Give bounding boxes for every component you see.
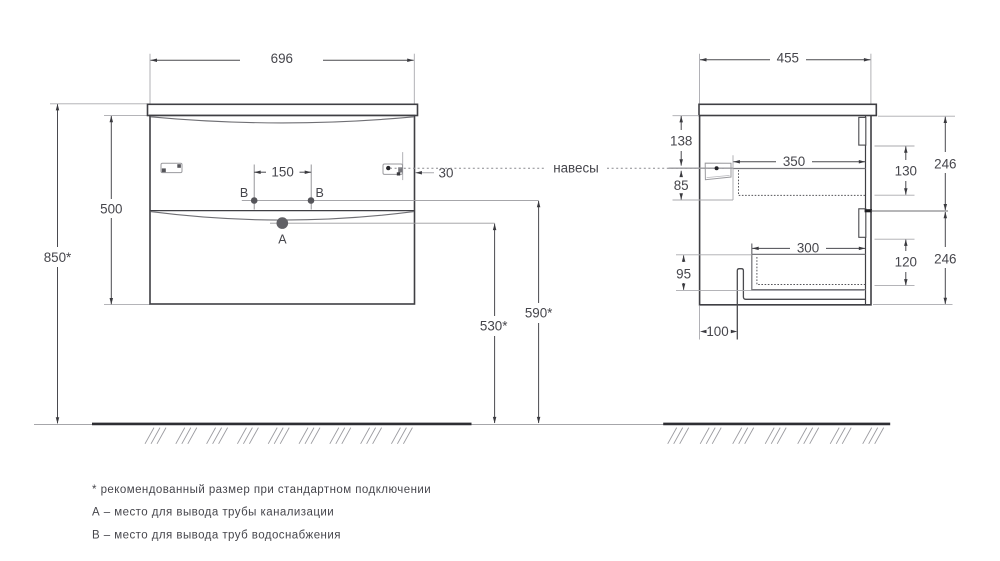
svg-text:85: 85 <box>674 178 689 193</box>
svg-text:300: 300 <box>797 240 819 255</box>
svg-text:590*: 590* <box>525 306 553 321</box>
svg-text:В – место для вывода труб водо: В – место для вывода труб водоснабжения <box>92 529 341 541</box>
svg-text:B: B <box>240 186 248 200</box>
svg-text:150: 150 <box>271 165 293 180</box>
svg-text:* рекомендованный размер при с: * рекомендованный размер при стандартном… <box>92 484 431 496</box>
svg-text:120: 120 <box>895 254 917 269</box>
svg-text:A: A <box>278 233 287 247</box>
svg-text:455: 455 <box>777 51 799 66</box>
svg-text:95: 95 <box>676 267 691 282</box>
svg-text:А – место для вывода трубы кан: А – место для вывода трубы канализации <box>92 507 334 519</box>
svg-text:850*: 850* <box>44 250 72 265</box>
svg-text:B: B <box>316 186 324 200</box>
svg-text:530*: 530* <box>480 319 508 334</box>
svg-text:350: 350 <box>783 154 805 169</box>
svg-text:696: 696 <box>271 51 293 66</box>
svg-text:500: 500 <box>100 202 122 217</box>
svg-text:30: 30 <box>439 165 454 180</box>
svg-text:100: 100 <box>706 324 728 339</box>
svg-text:246: 246 <box>934 251 956 266</box>
svg-text:навесы: навесы <box>553 161 599 176</box>
svg-text:246: 246 <box>934 156 956 171</box>
svg-text:130: 130 <box>895 164 917 179</box>
svg-text:138: 138 <box>670 133 692 148</box>
